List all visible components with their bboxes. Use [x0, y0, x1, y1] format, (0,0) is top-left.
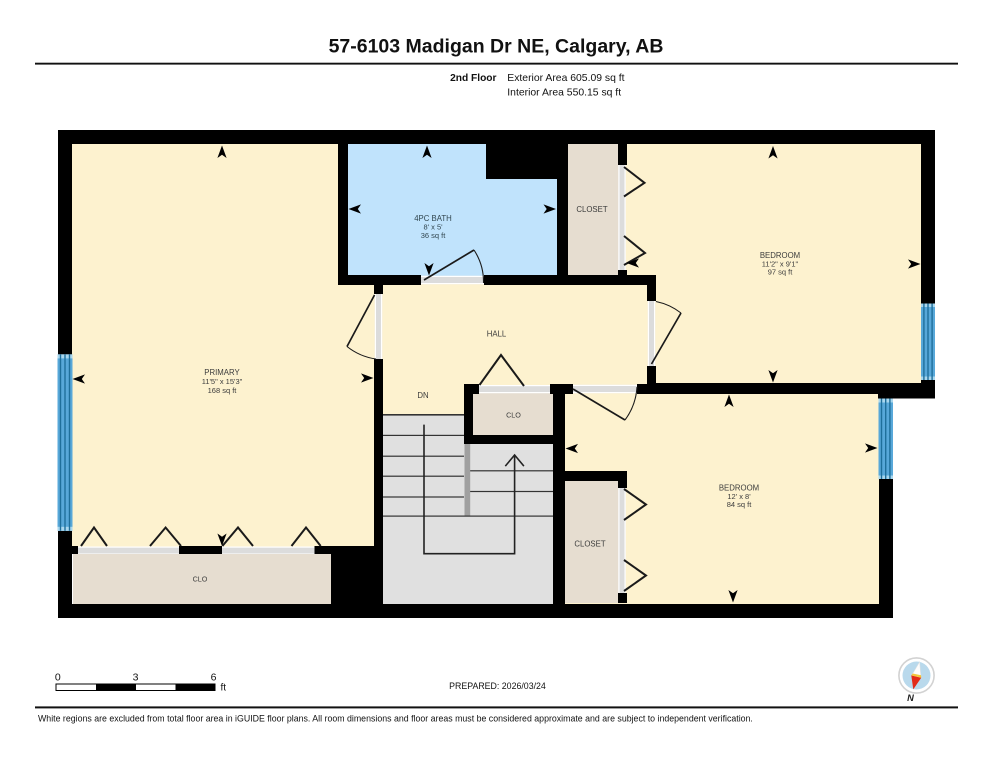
svg-text:CLO: CLO: [193, 575, 208, 584]
svg-text:97 sq ft: 97 sq ft: [768, 268, 794, 277]
svg-text:CLOSET: CLOSET: [576, 205, 607, 214]
svg-text:ft: ft: [221, 683, 227, 694]
svg-text:CLOSET: CLOSET: [574, 540, 605, 549]
svg-text:PRIMARY: PRIMARY: [204, 368, 240, 377]
svg-text:2nd Floor: 2nd Floor: [450, 73, 496, 84]
svg-text:HALL: HALL: [487, 330, 507, 339]
svg-text:6: 6: [211, 672, 217, 684]
svg-text:36 sq ft: 36 sq ft: [421, 231, 447, 240]
svg-text:0: 0: [55, 672, 61, 684]
svg-text:DN: DN: [417, 391, 428, 400]
svg-text:White regions are excluded fro: White regions are excluded from total fl…: [38, 714, 753, 724]
svg-text:11'5" x 15'3": 11'5" x 15'3": [202, 377, 243, 386]
svg-text:CLO: CLO: [506, 411, 521, 420]
svg-text:Exterior Area 605.09 sq ft: Exterior Area 605.09 sq ft: [507, 73, 624, 84]
svg-text:168 sq ft: 168 sq ft: [208, 386, 238, 395]
svg-text:57-6103 Madigan Dr NE, Calgary: 57-6103 Madigan Dr NE, Calgary, AB: [329, 36, 664, 58]
svg-text:3: 3: [133, 672, 139, 684]
svg-text:N: N: [907, 693, 914, 703]
svg-text:PREPARED: 2026/03/24: PREPARED: 2026/03/24: [449, 681, 546, 691]
svg-text:84 sq ft: 84 sq ft: [727, 500, 753, 509]
svg-text:Interior Area 550.15 sq ft: Interior Area 550.15 sq ft: [507, 87, 621, 98]
